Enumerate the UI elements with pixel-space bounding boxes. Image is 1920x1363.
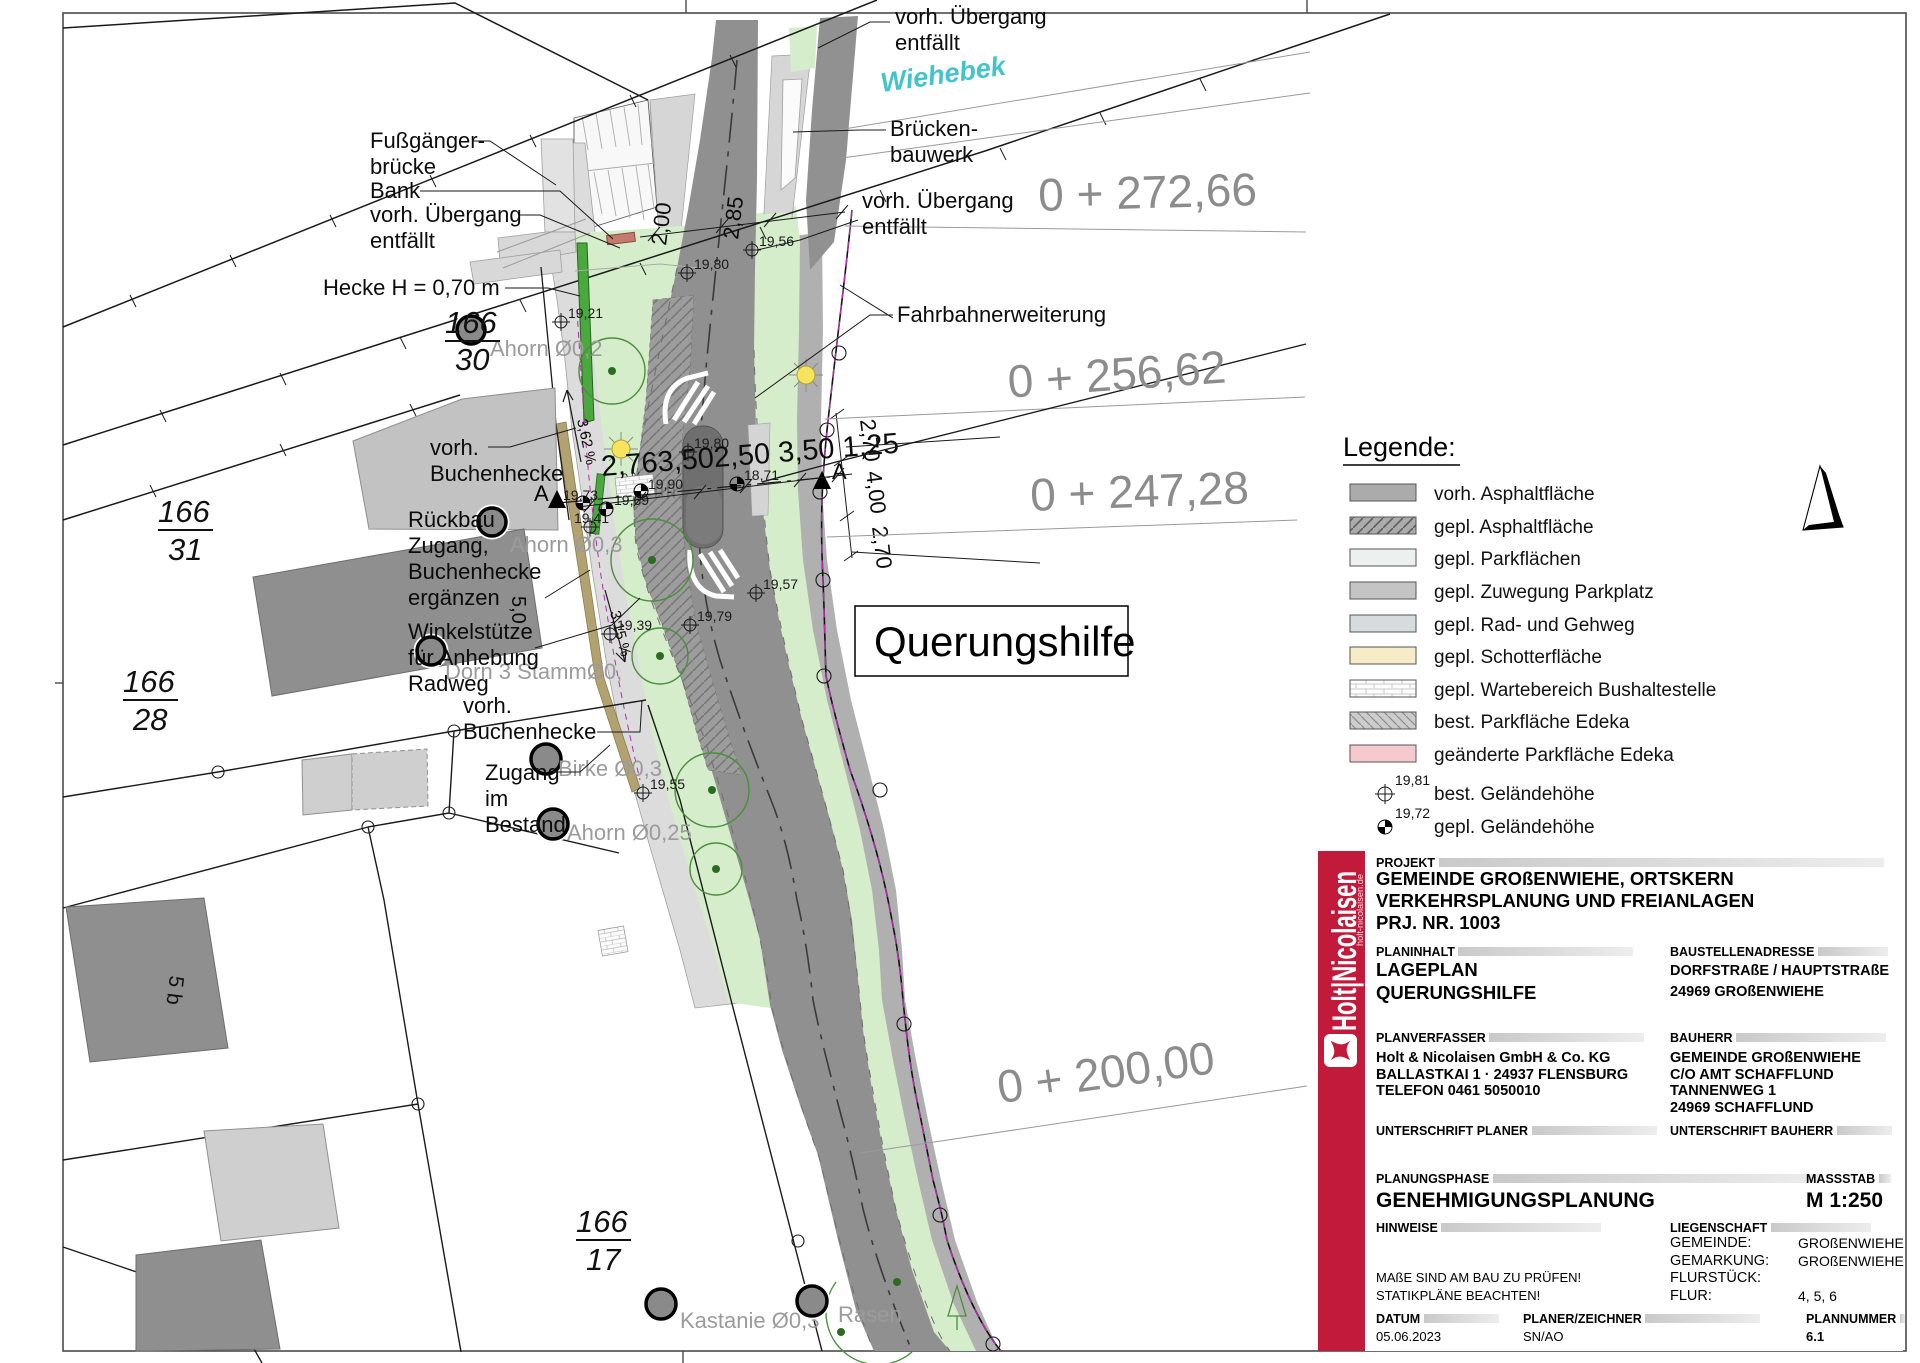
svg-text:0 + 200,00: 0 + 200,00 <box>994 1031 1218 1113</box>
svg-text:18,71: 18,71 <box>744 467 779 483</box>
svg-text:0 + 272,66: 0 + 272,66 <box>1038 163 1258 221</box>
svg-text:vorh. Übergang: vorh. Übergang <box>895 4 1047 29</box>
svg-text:gepl. Parkflächen: gepl. Parkflächen <box>1434 549 1581 570</box>
svg-text:gepl. Schotterfläche: gepl. Schotterfläche <box>1434 647 1602 668</box>
svg-text:Birke Ø0,3: Birke Ø0,3 <box>558 756 662 781</box>
svg-text:entfällt: entfällt <box>862 214 927 239</box>
svg-text:166: 166 <box>158 494 210 529</box>
svg-text:Ahorn Ø0,2: Ahorn Ø0,2 <box>490 336 603 361</box>
svg-text:19,39: 19,39 <box>617 617 652 633</box>
svg-text:für Anhebung: für Anhebung <box>408 645 539 670</box>
svg-text:19,73: 19,73 <box>563 487 598 503</box>
svg-text:Hecke H = 0,70 m: Hecke H = 0,70 m <box>323 275 500 300</box>
svg-text:2,85: 2,85 <box>718 195 748 241</box>
svg-text:19,79: 19,79 <box>697 608 732 624</box>
svg-text:vorh. Asphaltfläche: vorh. Asphaltfläche <box>1434 484 1595 505</box>
svg-text:19,80: 19,80 <box>694 256 729 272</box>
svg-text:Buchenhecke: Buchenhecke <box>408 559 541 584</box>
svg-text:Bank: Bank <box>370 178 421 203</box>
svg-text:Ahorn Ø0,3: Ahorn Ø0,3 <box>510 532 623 557</box>
svg-text:holt-nicolaisen.de: holt-nicolaisen.de <box>1355 874 1365 946</box>
svg-text:0 + 256,62: 0 + 256,62 <box>1006 340 1228 407</box>
svg-text:gepl. Asphaltfläche: gepl. Asphaltfläche <box>1434 517 1594 538</box>
svg-text:Ahorn Ø0,25: Ahorn Ø0,25 <box>567 820 692 845</box>
svg-text:Buchenhecke: Buchenhecke <box>463 719 596 744</box>
svg-text:2,70: 2,70 <box>867 525 897 571</box>
svg-text:Rückbau: Rückbau <box>408 507 495 532</box>
svg-text:19,57: 19,57 <box>763 576 798 592</box>
svg-text:gepl. Geländehöhe: gepl. Geländehöhe <box>1434 817 1595 838</box>
svg-text:geänderte Parkfläche Edeka: geänderte Parkfläche Edeka <box>1434 745 1674 766</box>
svg-text:30: 30 <box>455 342 489 377</box>
svg-text:Legende:: Legende: <box>1343 432 1456 462</box>
svg-text:19,21: 19,21 <box>568 305 603 321</box>
svg-text:vorh. Übergang: vorh. Übergang <box>862 188 1014 213</box>
svg-text:4,00: 4,00 <box>861 470 891 516</box>
svg-text:vorh. Übergang: vorh. Übergang <box>370 202 522 227</box>
svg-text:166: 166 <box>576 1204 628 1239</box>
svg-text:Wiehebek: Wiehebek <box>879 50 1010 97</box>
svg-text:ergänzen: ergänzen <box>408 585 500 610</box>
svg-text:best. Geländehöhe: best. Geländehöhe <box>1434 784 1595 805</box>
svg-text:Fahrbahnerweiterung: Fahrbahnerweiterung <box>897 302 1106 327</box>
svg-text:19,90: 19,90 <box>648 476 683 492</box>
svg-text:19,56: 19,56 <box>759 233 794 249</box>
svg-text:brücke: brücke <box>370 154 436 179</box>
svg-text:vorh.: vorh. <box>463 693 512 718</box>
svg-text:bauwerk: bauwerk <box>890 142 974 167</box>
svg-text:Fußgänger-: Fußgänger- <box>370 128 485 153</box>
svg-text:5,0: 5,0 <box>507 596 529 624</box>
svg-text:entfällt: entfällt <box>895 30 960 55</box>
svg-text:im: im <box>485 786 508 811</box>
svg-text:2,00: 2,00 <box>646 201 676 247</box>
svg-text:vorh.: vorh. <box>430 435 479 460</box>
svg-text:Buchenhecke: Buchenhecke <box>430 461 563 486</box>
svg-text:Zugang,: Zugang, <box>408 533 489 558</box>
svg-text:166: 166 <box>445 305 497 340</box>
svg-text:Rasen: Rasen <box>838 1302 902 1327</box>
svg-text:entfällt: entfällt <box>370 228 435 253</box>
svg-text:Brücken-: Brücken- <box>890 116 978 141</box>
svg-text:5 b: 5 b <box>161 974 187 1006</box>
svg-text:gepl. Wartebereich Bushalteste: gepl. Wartebereich Bushaltestelle <box>1434 680 1716 701</box>
svg-text:Querungshilfe: Querungshilfe <box>874 618 1136 665</box>
svg-text:19,80: 19,80 <box>694 435 729 451</box>
svg-text:gepl. Zuwegung Parkplatz: gepl. Zuwegung Parkplatz <box>1434 582 1654 603</box>
svg-text:Zugang: Zugang <box>485 760 560 785</box>
svg-text:166: 166 <box>123 664 175 699</box>
svg-text:31: 31 <box>168 532 202 567</box>
svg-text:28: 28 <box>132 702 168 737</box>
svg-text:best. Parkfläche Edeka: best. Parkfläche Edeka <box>1434 712 1630 733</box>
svg-text:gepl. Rad- und Gehweg: gepl. Rad- und Gehweg <box>1434 615 1635 636</box>
svg-text:19,72: 19,72 <box>1395 805 1430 821</box>
svg-text:19,69: 19,69 <box>614 492 649 508</box>
svg-text:19,81: 19,81 <box>1395 772 1430 788</box>
svg-text:Bestand: Bestand <box>485 812 566 837</box>
svg-text:17: 17 <box>586 1242 622 1277</box>
svg-text:0 + 247,28: 0 + 247,28 <box>1029 461 1249 521</box>
